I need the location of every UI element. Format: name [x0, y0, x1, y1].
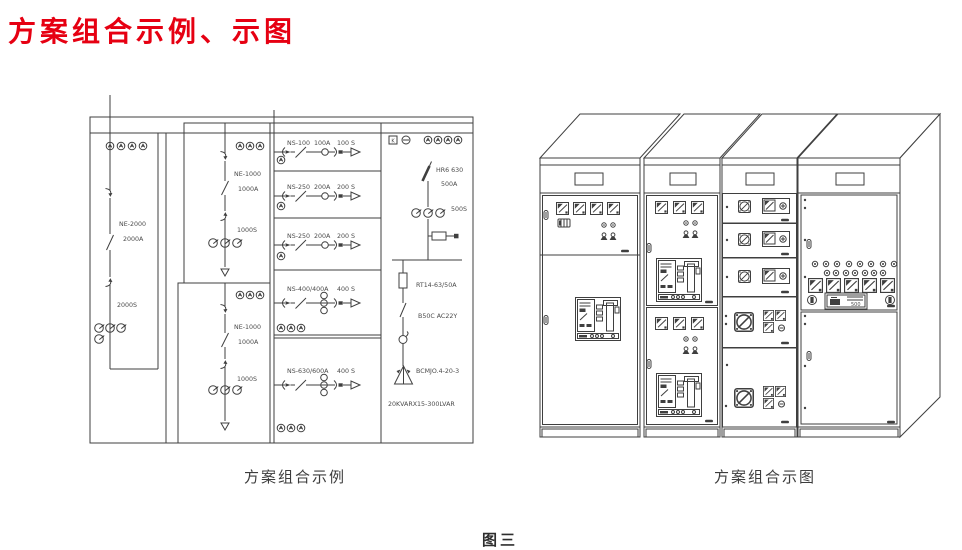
digital-meter: 500 [825, 293, 867, 309]
feeder-ns-row: NS-250 200A 200 S [274, 233, 360, 260]
feeder-model: NS-400/400A [287, 286, 329, 293]
plinth [800, 429, 898, 437]
nameplate [836, 173, 864, 185]
catalog-page: { "page": { "title": "方案组合示例、示图", "figur… [0, 0, 962, 550]
incomer-circuit: NE-2000 2000A 2000S [95, 95, 158, 369]
feeder-current: 100A [314, 140, 331, 147]
fuse-icon [432, 232, 446, 240]
control-knob-icon [558, 219, 570, 227]
capacitor-model: BCMJO.4-20-3 [416, 368, 459, 375]
drawer-unit [723, 297, 797, 348]
cabinet-1 [540, 158, 640, 437]
feeder-current: 200A [314, 184, 331, 191]
nameplate [670, 173, 696, 185]
feeder-compartment [647, 308, 718, 425]
switch-current: 500A [441, 181, 458, 188]
feeder-model: NS-630/600A [287, 368, 329, 375]
incomer-ct: 2000S [117, 302, 137, 309]
nameplate [575, 173, 603, 185]
feeder-current: 1000A [238, 339, 259, 346]
cabinet-2 [644, 158, 720, 437]
branch-contactor: B50C AC22Y [418, 313, 457, 320]
incomer-current: 2000A [123, 236, 144, 243]
feeder-ct: 400 S [337, 286, 355, 293]
feeder-model: NE-1000 [234, 324, 261, 331]
plinth [542, 429, 638, 437]
fascia [798, 158, 900, 165]
switch-blade-icon [400, 303, 406, 317]
fascia [644, 158, 720, 165]
feeder-current: 200A [314, 233, 331, 240]
feeder-model: NS-100 [287, 140, 310, 147]
fuse-icon [399, 273, 407, 288]
feeder-model: NS-250 [287, 184, 310, 191]
page-title: 方案组合示例、示图 [8, 10, 296, 50]
feeder-ns-row: NS-250 200A 200 S [274, 184, 360, 210]
plinth [646, 429, 718, 437]
feeder-model: NS-250 [287, 233, 310, 240]
cabinet-3 [722, 158, 797, 437]
feeder-ns-row: NS-100 100A 100 S [274, 140, 360, 164]
feeder-ns-row: NS-400/400A 400 S [274, 286, 360, 332]
feeder-compartment [184, 123, 270, 283]
fuse-switch-blade-icon [423, 166, 430, 181]
fascia [722, 158, 797, 165]
panel-divider [158, 133, 166, 443]
switchboard-outline [90, 117, 473, 443]
cabinet-4: 500 [798, 158, 900, 437]
feeder-ct: 1000S [237, 376, 257, 383]
digital-meter-value: 500 [851, 302, 861, 308]
fascia [540, 158, 640, 165]
incomer-model: NE-2000 [119, 221, 146, 228]
branch-ct: 500S [451, 206, 467, 213]
nameplate [746, 173, 774, 185]
feeder-ct: 200 S [337, 233, 355, 240]
feeder-ns-row: NS-630/600A 400 S [274, 368, 360, 432]
cabinet-drawing: 500 [525, 88, 945, 460]
side-panel [900, 114, 940, 437]
plinth [724, 429, 795, 437]
feeder-ct: 200 S [337, 184, 355, 191]
blank-door [801, 312, 897, 424]
switch-model: HR6 630 [436, 167, 463, 174]
capacitor-branch: K HR6 630 500A 500S RT14-63/50A B50C AC2… [388, 136, 467, 408]
feeder-current: 1000A [238, 186, 259, 193]
feeder-ne-1: NE-1000 1000A 1000S [209, 123, 264, 276]
contactor-icon [399, 336, 407, 344]
feeder-ct: 1000S [237, 227, 257, 234]
bank-rating: 20KVARX15-300LVAR [388, 401, 455, 408]
schematic-diagram: NE-2000 2000A 2000S NE-1000 1000A 1000S … [85, 95, 515, 455]
feeder-ct: 100 S [337, 140, 355, 147]
feeder-ne-2: NE-1000 1000A 1000S [209, 283, 264, 430]
branch-fuse: RT14-63/50A [416, 282, 457, 289]
cabinet-caption: 方案组合示图 [714, 466, 816, 487]
capacitor-bank-icon [395, 366, 413, 384]
feeder-ct: 400 S [337, 368, 355, 375]
schematic-caption: 方案组合示例 [244, 466, 346, 487]
feeder-compartment [647, 196, 718, 306]
figure-label: 图三 [482, 529, 518, 550]
feeder-model: NE-1000 [234, 171, 261, 178]
